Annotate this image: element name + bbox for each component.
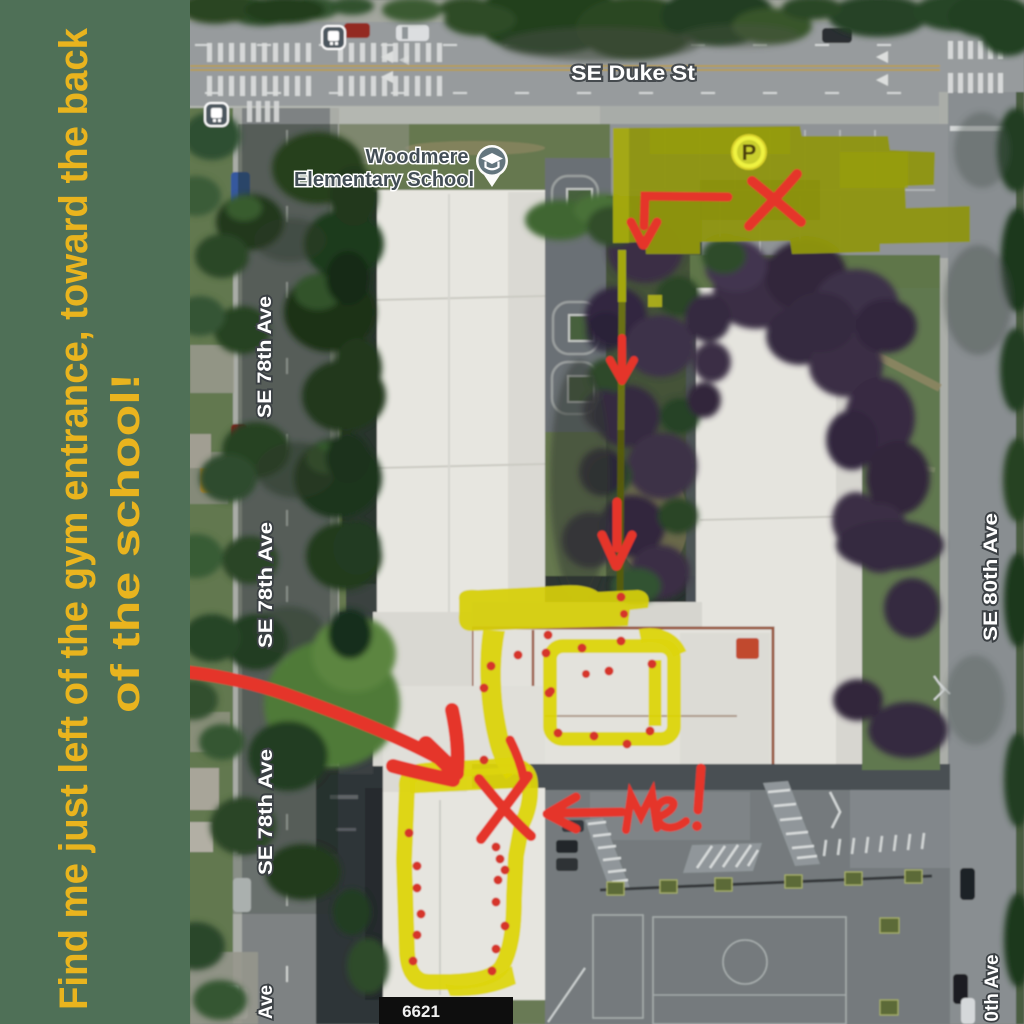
svg-text:SE 78th Ave: SE 78th Ave [255,296,276,418]
svg-text:Woodmere: Woodmere [366,146,469,168]
svg-text:P: P [742,140,757,165]
svg-text:Find me just left of the gym e: Find me just left of the gym entrance, t… [52,27,96,1010]
svg-text:Elementary School: Elementary School [294,169,474,191]
svg-text:SE 80th Ave: SE 80th Ave [981,513,1002,641]
svg-text:0th Ave: 0th Ave [982,954,1003,1021]
svg-text:SE Duke St: SE Duke St [571,62,695,85]
svg-text:6621: 6621 [402,1002,440,1021]
svg-text:SE 78th Ave: SE 78th Ave [256,522,277,648]
svg-text:Ave: Ave [256,985,277,1019]
svg-text:of the school!: of the school! [104,373,148,713]
svg-text:SE 78th Ave: SE 78th Ave [256,749,277,875]
